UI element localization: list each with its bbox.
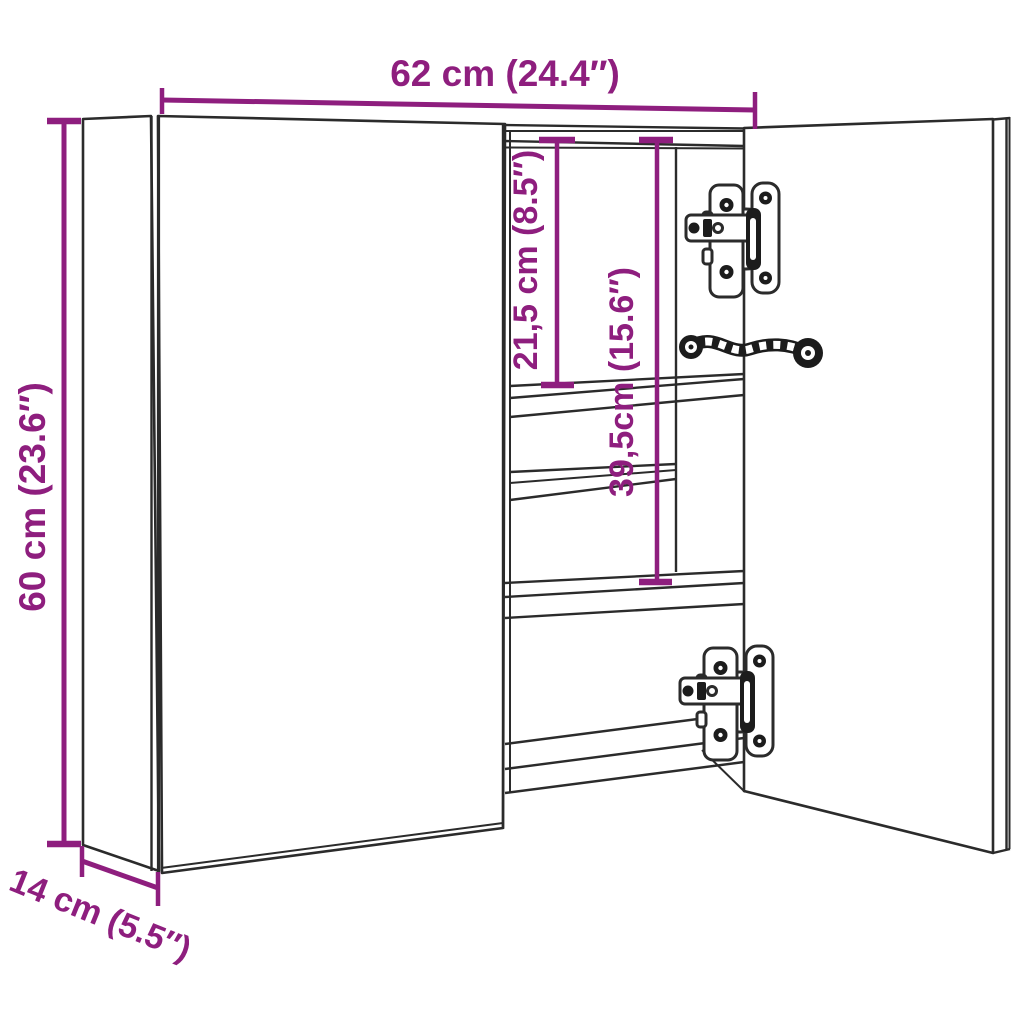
mirror-cabinet-dimension-diagram: 62 cm (24.4″) 60 cm (23.6″) 14 cm (5.5″)…: [0, 0, 1024, 1024]
width-dimension-label: 62 cm (24.4″): [390, 53, 620, 94]
interior-ceiling-edge-2: [503, 148, 744, 149]
interior-shelf-lower: [505, 571, 744, 618]
diagram-canvas: 62 cm (24.4″) 60 cm (23.6″) 14 cm (5.5″)…: [0, 0, 1024, 1024]
middle-compartment-dimension: 39,5cm (15.6″): [603, 140, 673, 582]
depth-dimension-label: 14 cm (5.5″): [4, 861, 196, 968]
left-door-panel: [158, 116, 505, 873]
hinge-bottom: [680, 646, 773, 760]
upper-compartment-dimension: 21,5 cm (8.5″): [507, 140, 575, 385]
cabinet-drawing: [83, 116, 1010, 873]
interior-shelf-middle: [510, 464, 676, 500]
upper-compartment-label: 21,5 cm (8.5″): [507, 150, 545, 370]
height-dimension: 60 cm (23.6″): [12, 121, 81, 844]
left-side-panel: [83, 116, 159, 871]
carcass-top-edge: [505, 125, 744, 129]
middle-compartment-label: 39,5cm (15.6″): [603, 267, 641, 497]
right-door-bottom-thickness: [993, 849, 1010, 853]
right-door-panel: [744, 119, 993, 853]
right-door-top-thickness: [993, 118, 1010, 120]
hinge-top: [686, 183, 779, 297]
height-dimension-label: 60 cm (23.6″): [12, 382, 53, 612]
